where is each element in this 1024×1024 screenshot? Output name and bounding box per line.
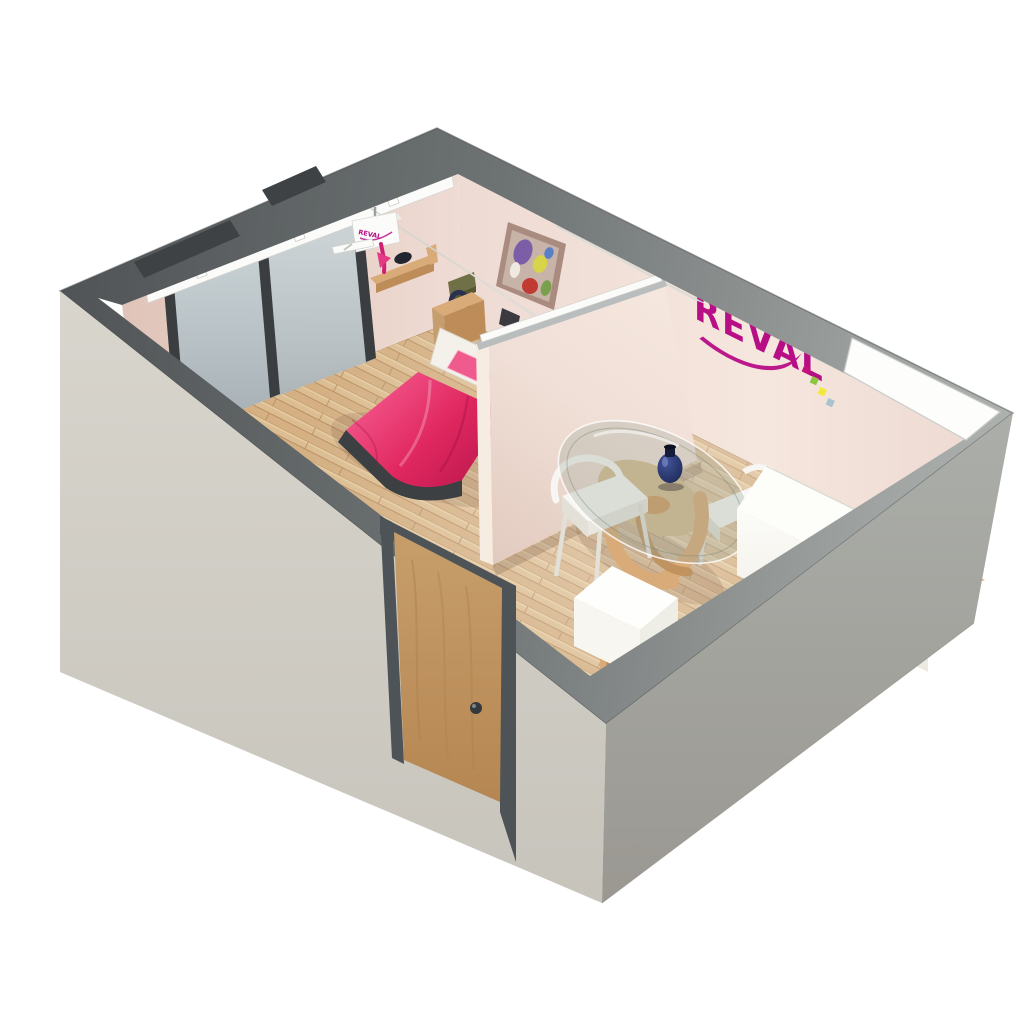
- render-canvas: REVAL REVAL: [0, 0, 1024, 1024]
- floorplan-3d-render: REVAL REVAL: [0, 0, 1024, 1024]
- door-knob: [470, 702, 482, 714]
- door-frame: [500, 578, 516, 862]
